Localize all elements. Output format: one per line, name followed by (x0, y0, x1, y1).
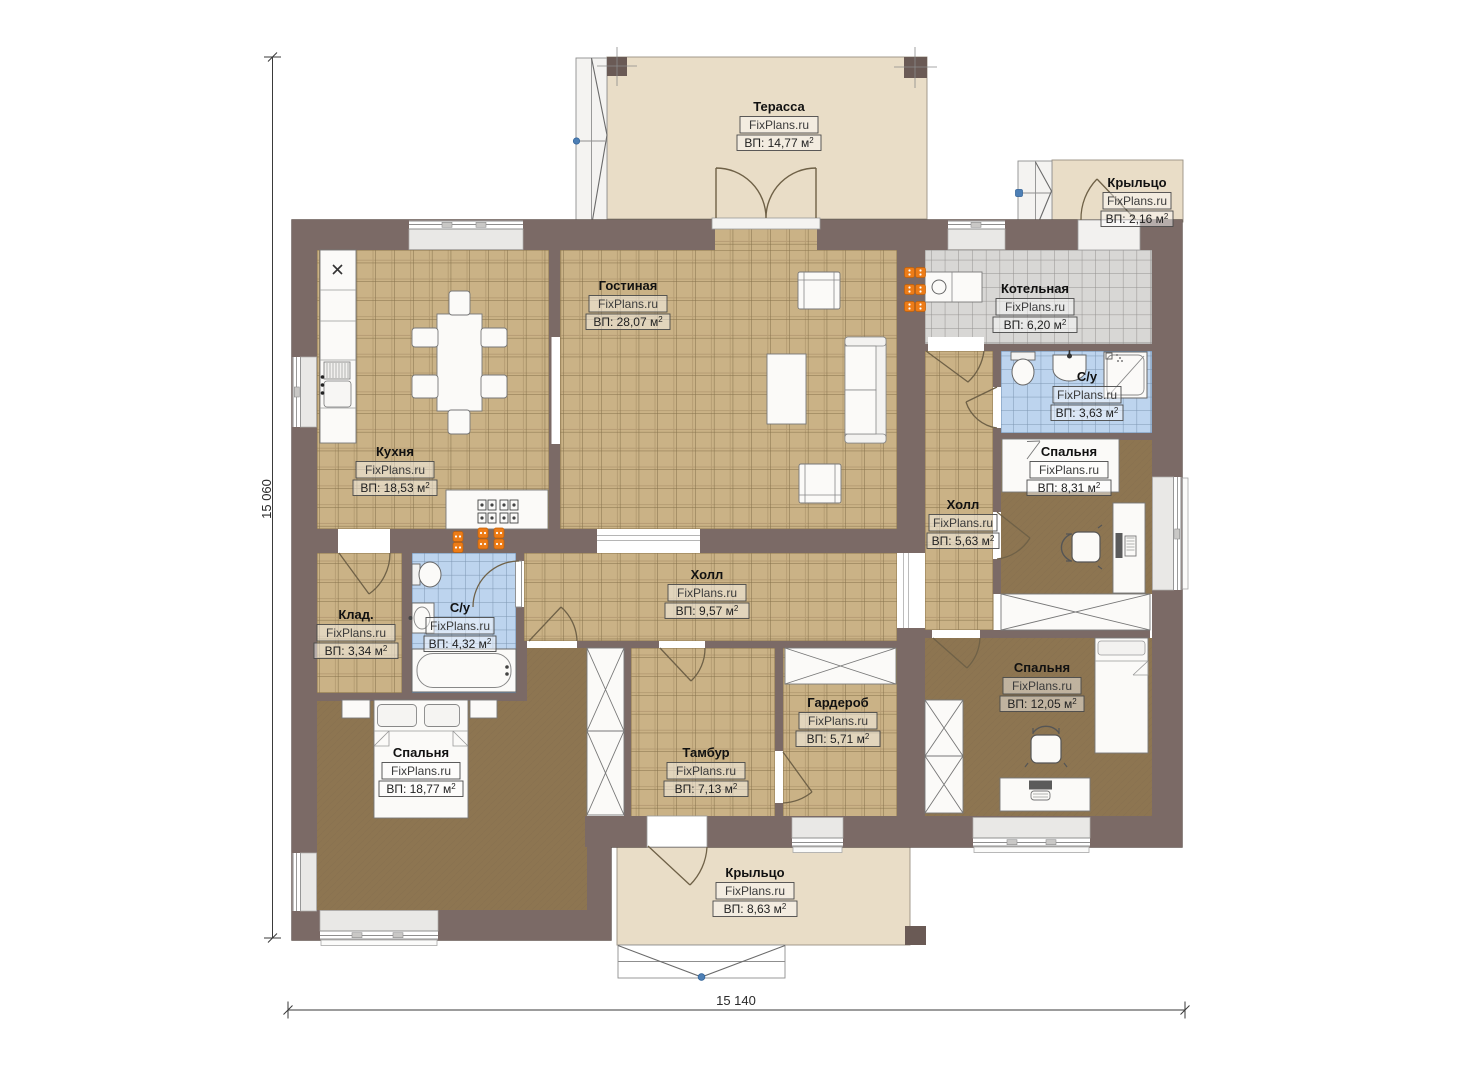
svg-text:FixPlans.ru: FixPlans.ru (725, 884, 785, 898)
svg-text:Гостиная: Гостиная (599, 278, 658, 293)
svg-text:ВП: 3,63 м2: ВП: 3,63 м2 (1056, 406, 1119, 420)
svg-text:Холл: Холл (947, 497, 980, 512)
svg-text:FixPlans.ru: FixPlans.ru (749, 118, 809, 132)
svg-text:Кухня: Кухня (376, 444, 414, 459)
svg-text:ВП: 18,77 м2: ВП: 18,77 м2 (386, 782, 456, 796)
svg-text:ВП: 3,34 м2: ВП: 3,34 м2 (325, 644, 388, 658)
svg-text:FixPlans.ru: FixPlans.ru (676, 764, 736, 778)
svg-text:FixPlans.ru: FixPlans.ru (391, 764, 451, 778)
svg-text:ВП: 5,71 м2: ВП: 5,71 м2 (807, 732, 870, 746)
svg-text:ВП: 14,77 м2: ВП: 14,77 м2 (744, 136, 814, 150)
svg-text:Спальня: Спальня (393, 745, 449, 760)
svg-text:Спальня: Спальня (1041, 444, 1097, 459)
svg-text:FixPlans.ru: FixPlans.ru (808, 714, 868, 728)
svg-text:15 060: 15 060 (259, 479, 274, 519)
svg-text:FixPlans.ru: FixPlans.ru (677, 586, 737, 600)
svg-text:ВП: 18,53 м2: ВП: 18,53 м2 (360, 481, 430, 495)
svg-text:Крыльцо: Крыльцо (1107, 175, 1166, 190)
svg-text:ВП: 8,31 м2: ВП: 8,31 м2 (1038, 481, 1101, 495)
svg-text:15 140: 15 140 (716, 993, 756, 1008)
svg-text:FixPlans.ru: FixPlans.ru (1012, 679, 1072, 693)
svg-text:FixPlans.ru: FixPlans.ru (933, 516, 993, 530)
svg-text:ВП: 9,57 м2: ВП: 9,57 м2 (676, 604, 739, 618)
svg-text:ВП: 4,32 м2: ВП: 4,32 м2 (429, 637, 492, 651)
svg-text:FixPlans.ru: FixPlans.ru (326, 626, 386, 640)
svg-text:Терасса: Терасса (753, 99, 805, 114)
svg-text:ВП: 8,63 м2: ВП: 8,63 м2 (724, 902, 787, 916)
svg-text:ВП: 6,20 м2: ВП: 6,20 м2 (1004, 318, 1067, 332)
svg-text:FixPlans.ru: FixPlans.ru (1005, 300, 1065, 314)
svg-text:ВП: 2,16 м2: ВП: 2,16 м2 (1106, 212, 1169, 226)
svg-text:Клад.: Клад. (338, 607, 373, 622)
svg-text:FixPlans.ru: FixPlans.ru (430, 619, 490, 633)
svg-text:FixPlans.ru: FixPlans.ru (1057, 388, 1117, 402)
svg-text:Гардероб: Гардероб (807, 695, 868, 710)
svg-text:Холл: Холл (691, 567, 724, 582)
svg-text:ВП: 5,63 м2: ВП: 5,63 м2 (932, 534, 995, 548)
svg-text:ВП: 12,05 м2: ВП: 12,05 м2 (1007, 697, 1077, 711)
svg-text:FixPlans.ru: FixPlans.ru (1107, 194, 1167, 208)
svg-text:Котельная: Котельная (1001, 281, 1069, 296)
svg-text:С/у: С/у (1077, 369, 1098, 384)
svg-text:Крыльцо: Крыльцо (725, 865, 784, 880)
svg-text:FixPlans.ru: FixPlans.ru (1039, 463, 1099, 477)
svg-text:Спальня: Спальня (1014, 660, 1070, 675)
svg-text:ВП: 7,13 м2: ВП: 7,13 м2 (675, 782, 738, 796)
svg-text:ВП: 28,07 м2: ВП: 28,07 м2 (593, 315, 663, 329)
svg-text:Тамбур: Тамбур (682, 745, 729, 760)
svg-text:FixPlans.ru: FixPlans.ru (365, 463, 425, 477)
svg-text:С/у: С/у (450, 600, 471, 615)
svg-text:FixPlans.ru: FixPlans.ru (598, 297, 658, 311)
